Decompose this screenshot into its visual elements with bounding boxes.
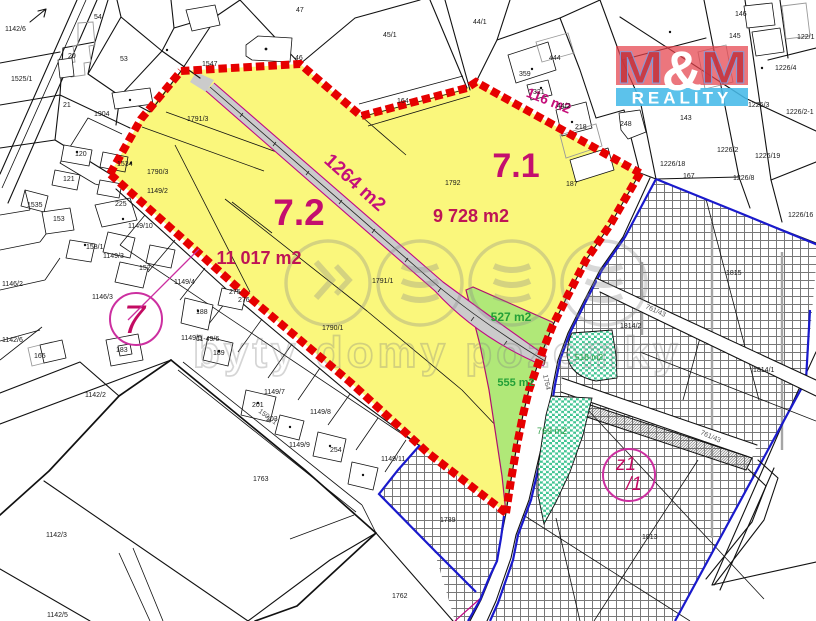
- svg-text:359: 359: [519, 71, 531, 78]
- svg-text:1814/1: 1814/1: [753, 367, 775, 374]
- svg-text:1815: 1815: [726, 270, 742, 277]
- svg-text:44/1: 44/1: [473, 19, 487, 26]
- svg-text:1149/2: 1149/2: [147, 188, 168, 195]
- svg-text:11 017 m2: 11 017 m2: [216, 248, 301, 268]
- svg-text:44/2: 44/2: [557, 103, 571, 110]
- svg-text:225: 225: [115, 201, 127, 208]
- svg-text:11-49/6: 11-49/6: [196, 336, 219, 343]
- svg-text:527 m2: 527 m2: [491, 310, 532, 324]
- svg-text:1547: 1547: [202, 61, 218, 68]
- svg-text:1226/2-1: 1226/2-1: [786, 109, 814, 116]
- svg-text:1226/8: 1226/8: [733, 175, 755, 182]
- svg-text:218: 218: [575, 124, 587, 131]
- svg-text:1789: 1789: [440, 517, 456, 524]
- svg-text:1904: 1904: [94, 111, 110, 118]
- svg-text:1226/4: 1226/4: [775, 65, 797, 72]
- svg-text:275: 275: [229, 289, 241, 296]
- svg-text:1142/6: 1142/6: [2, 337, 23, 344]
- svg-text:1142/5: 1142/5: [47, 612, 68, 619]
- svg-text:158/1: 158/1: [86, 244, 104, 251]
- svg-text:20: 20: [68, 53, 76, 60]
- svg-text:1146/3: 1146/3: [92, 294, 113, 301]
- svg-text:1790/3: 1790/3: [147, 169, 169, 176]
- svg-text:/1: /1: [624, 474, 642, 495]
- svg-text:1790/1: 1790/1: [322, 325, 344, 332]
- svg-text:555 m2: 555 m2: [497, 377, 534, 389]
- svg-text:187: 187: [566, 181, 578, 188]
- svg-text:153: 153: [53, 216, 65, 223]
- svg-text:46: 46: [295, 55, 303, 62]
- svg-text:1763: 1763: [253, 476, 269, 483]
- svg-text:254: 254: [330, 447, 342, 454]
- svg-text:47: 47: [296, 7, 304, 14]
- svg-text:1149/7: 1149/7: [264, 389, 285, 396]
- svg-text:45/1: 45/1: [383, 32, 397, 39]
- svg-text:1525/1: 1525/1: [11, 76, 33, 83]
- svg-text:1149/3: 1149/3: [103, 253, 124, 260]
- svg-text:54: 54: [94, 14, 102, 21]
- svg-text:167: 167: [683, 173, 695, 180]
- svg-text:1535: 1535: [27, 202, 43, 209]
- svg-text:1142/6: 1142/6: [5, 26, 26, 33]
- svg-text:1792: 1792: [445, 180, 461, 187]
- svg-text:9 728 m2: 9 728 m2: [433, 206, 509, 226]
- svg-text:REALITY: REALITY: [632, 89, 733, 108]
- svg-text:145: 145: [729, 33, 741, 40]
- svg-text:518 m2: 518 m2: [575, 352, 604, 362]
- svg-text:444: 444: [549, 55, 561, 62]
- svg-text:1226/18: 1226/18: [660, 161, 685, 168]
- svg-text:7.2: 7.2: [273, 192, 324, 233]
- svg-text:1142/3: 1142/3: [46, 532, 67, 539]
- svg-text:1149/8: 1149/8: [310, 409, 331, 416]
- svg-text:1149/11: 1149/11: [381, 456, 405, 463]
- svg-text:1813: 1813: [642, 534, 658, 541]
- svg-text:1762: 1762: [392, 593, 408, 600]
- svg-text:21: 21: [63, 102, 71, 109]
- svg-text:byty domy pozemky: byty domy pozemky: [193, 328, 682, 377]
- svg-text:53: 53: [120, 56, 128, 63]
- svg-text:143: 143: [680, 115, 692, 122]
- svg-text:769 m2: 769 m2: [537, 426, 567, 436]
- svg-text:z1: z1: [615, 454, 636, 475]
- svg-text:122/1: 122/1: [797, 34, 815, 41]
- svg-text:M: M: [701, 42, 748, 92]
- svg-text:321: 321: [533, 89, 545, 96]
- svg-text:121: 121: [63, 176, 75, 183]
- svg-text:M: M: [617, 42, 664, 92]
- svg-text:1226/3: 1226/3: [748, 102, 770, 109]
- svg-text:183: 183: [116, 347, 128, 354]
- svg-text:146: 146: [735, 11, 747, 18]
- svg-text:1791/3: 1791/3: [187, 116, 209, 123]
- svg-text:165: 165: [34, 353, 46, 360]
- svg-text:1791/1: 1791/1: [372, 278, 394, 285]
- svg-text:1142/2: 1142/2: [85, 392, 106, 399]
- svg-text:1226/16: 1226/16: [788, 212, 813, 219]
- svg-text:164: 164: [397, 98, 409, 105]
- svg-text:276: 276: [238, 297, 250, 304]
- svg-text:7.1: 7.1: [492, 147, 539, 185]
- svg-text:1149/4: 1149/4: [174, 279, 195, 286]
- svg-text:1226/2: 1226/2: [717, 147, 739, 154]
- svg-text:1814/2: 1814/2: [620, 323, 642, 330]
- svg-text:1226/19: 1226/19: [755, 153, 780, 160]
- svg-text:1146/2: 1146/2: [2, 281, 23, 288]
- svg-text:1149/10: 1149/10: [128, 223, 153, 230]
- svg-text:248: 248: [620, 121, 632, 128]
- svg-text:1149/9: 1149/9: [289, 442, 310, 449]
- svg-text:152: 152: [139, 265, 151, 272]
